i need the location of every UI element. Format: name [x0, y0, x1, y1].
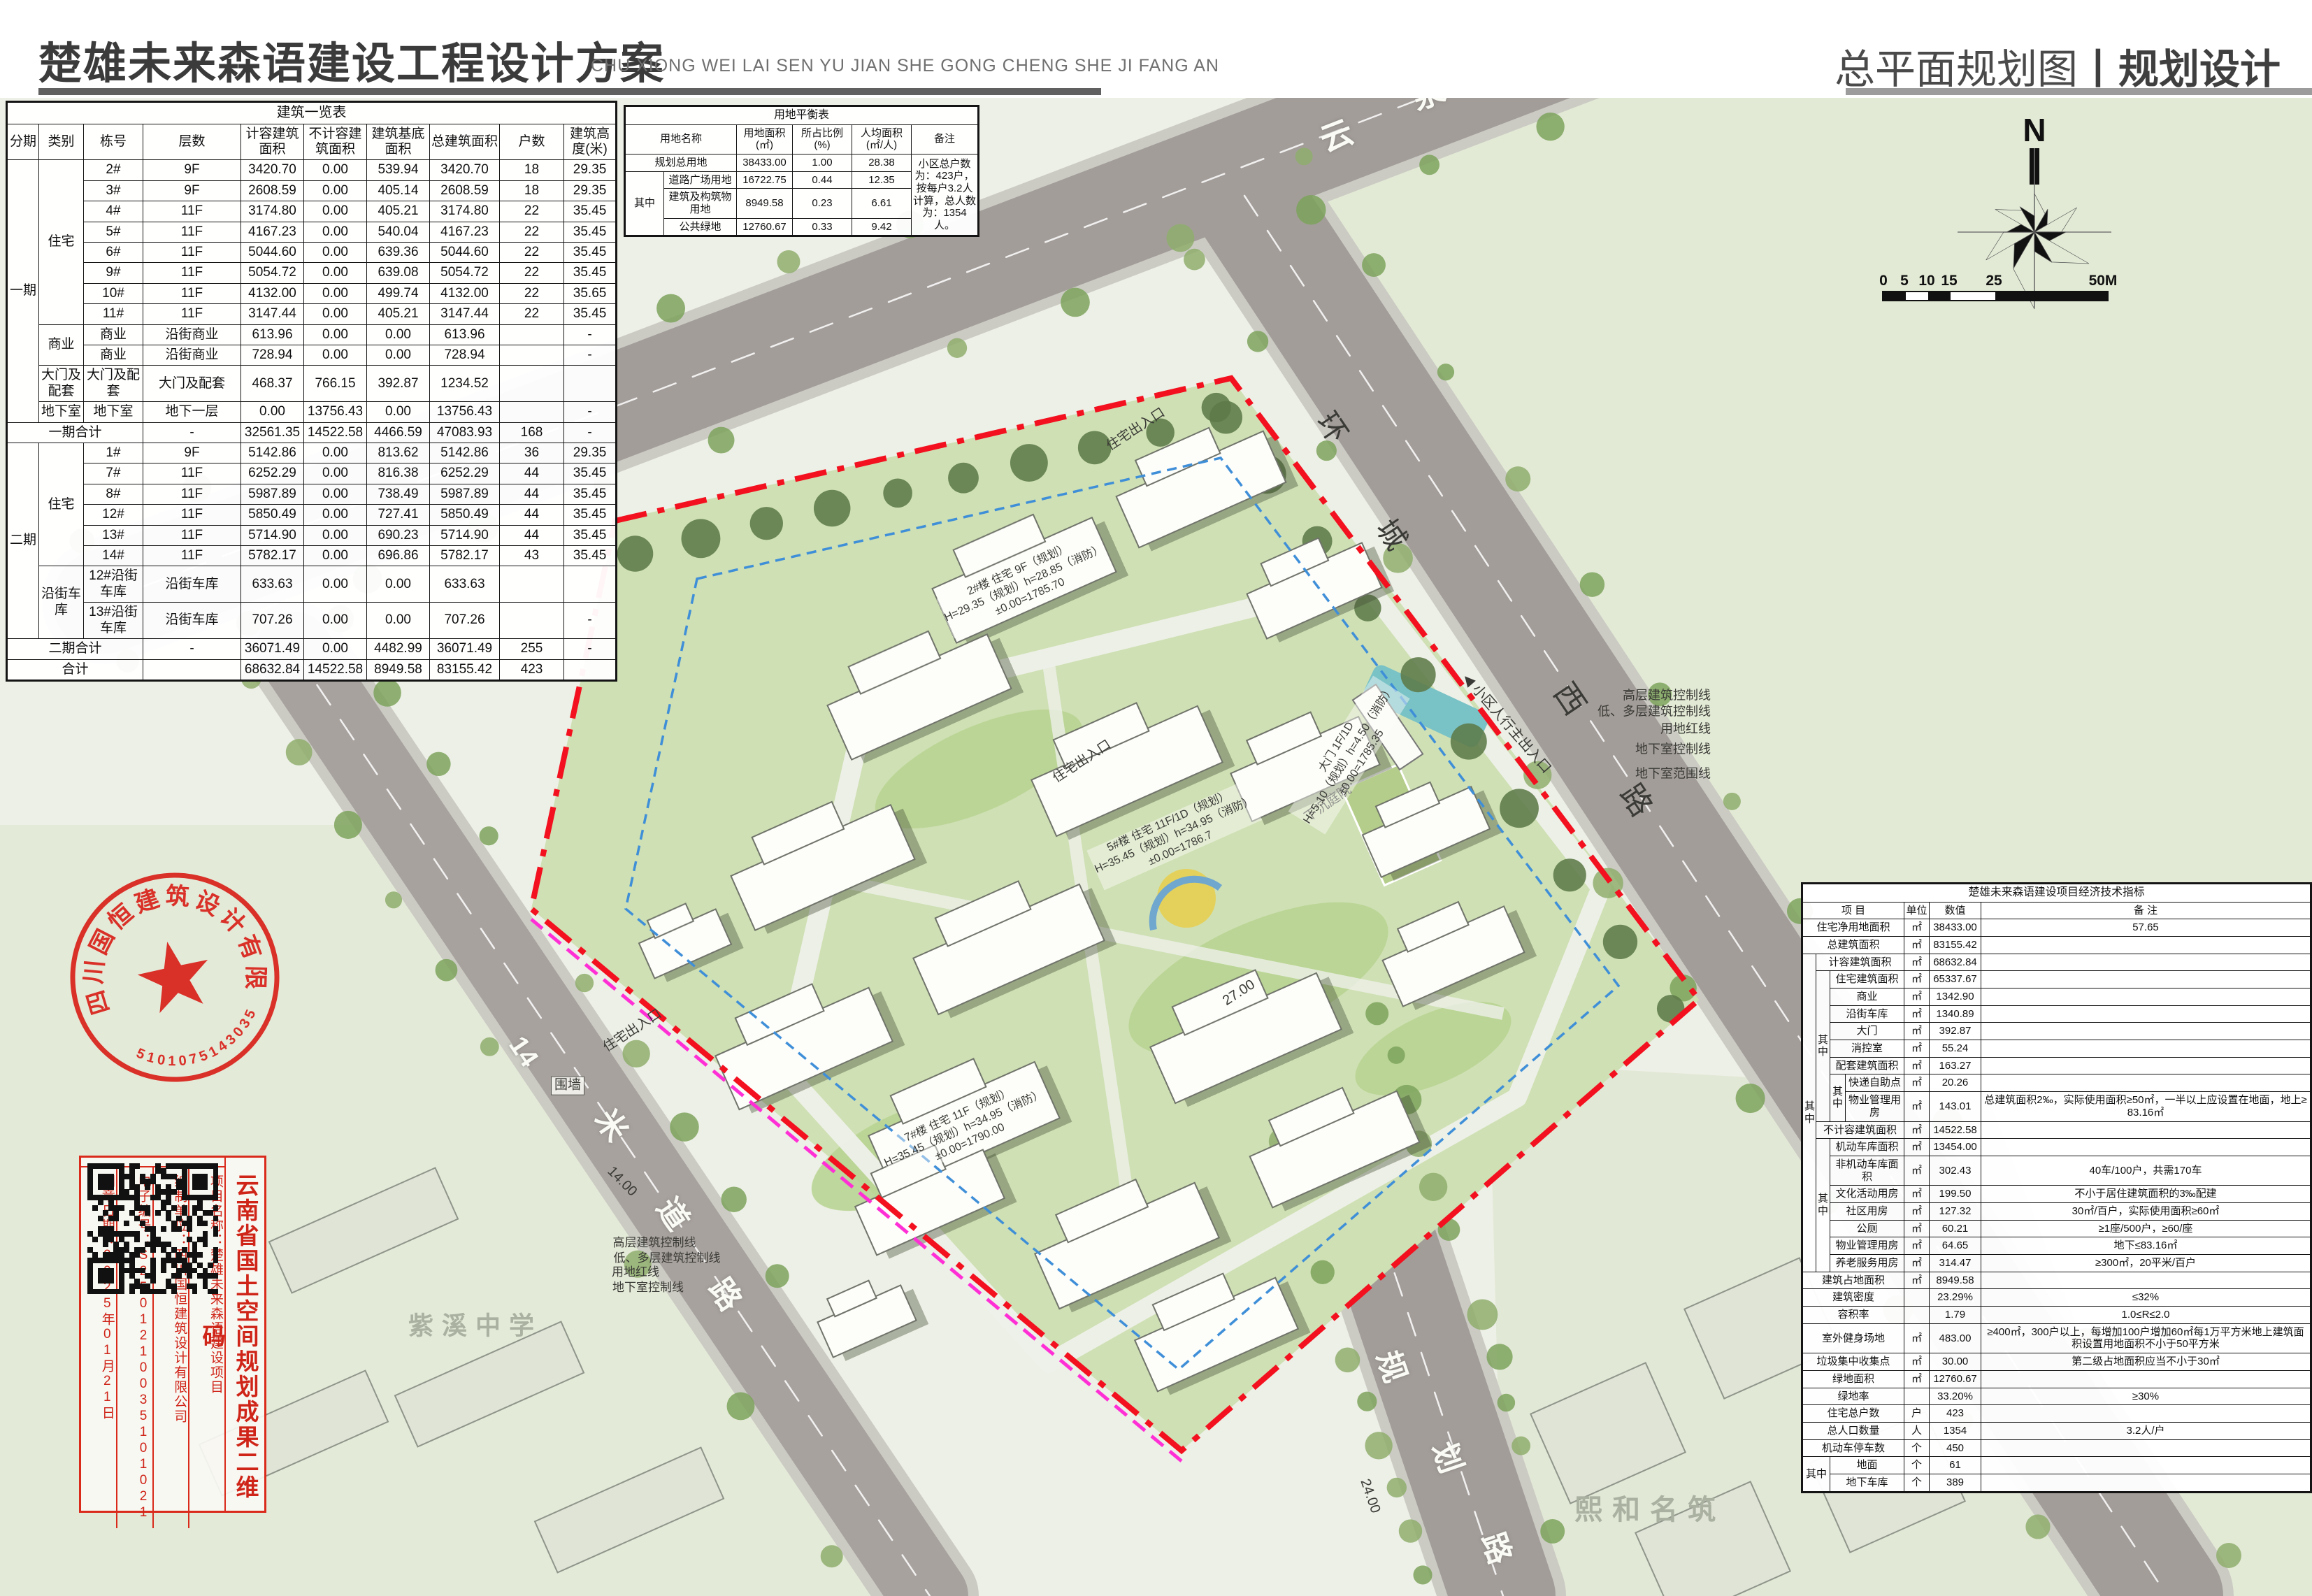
table-cell: 机动车停车数: [1802, 1439, 1904, 1457]
table-cell: 不小于居住建筑面积的3‰配建: [1981, 1186, 2311, 1203]
table-cell: 0.00: [367, 345, 430, 366]
table-cell: 物业管理用房: [1830, 1237, 1904, 1255]
table-cell: 公厕: [1830, 1220, 1904, 1237]
table-cell: ㎡: [1904, 1353, 1930, 1371]
table-cell: 住宅: [39, 443, 84, 566]
table-cell: 3147.44: [430, 304, 500, 324]
table-cell: 13#沿街车库: [84, 603, 143, 639]
table-cell: -: [564, 422, 617, 443]
table-cell: 项 目: [1802, 902, 1904, 919]
table-cell: 沿街车库: [143, 566, 241, 603]
table-cell: 9F: [143, 160, 241, 180]
table-cell: -: [143, 639, 241, 659]
table-cell: 816.38: [367, 463, 430, 484]
table-cell: 建筑及构筑物用地: [664, 189, 737, 218]
table-cell: [1981, 1457, 2311, 1474]
table-cell: 消控室: [1830, 1040, 1904, 1058]
table-cell: 分期: [7, 124, 39, 160]
table-cell: ㎡: [1904, 1255, 1930, 1272]
table-cell: 小区总户数为：423户，按每户3.2人计算，总人数为：1354人。: [912, 154, 979, 236]
table-cell: ≥300㎡，20平米/百户: [1981, 1255, 2311, 1272]
table-cell: 1234.52: [430, 366, 500, 402]
table-cell: 沿街车库: [143, 603, 241, 639]
table-cell: 35.45: [564, 263, 617, 283]
table-cell: 35.45: [564, 525, 617, 545]
table-cell: ㎡: [1904, 1370, 1930, 1388]
header-rule-right: [1846, 88, 2312, 95]
table-cell: 其中: [1816, 1139, 1830, 1272]
table-cell: 35.45: [564, 484, 617, 504]
table-cell: ㎡: [1904, 1023, 1930, 1040]
table-cell: ㎡: [1904, 1121, 1930, 1139]
table-cell: 389: [1930, 1474, 1981, 1492]
table-cell: 539.94: [367, 160, 430, 180]
table-cell: 住宅总户数: [1802, 1405, 1904, 1423]
table-cell: 备注: [912, 124, 979, 154]
compass-n-label: N: [2023, 112, 2046, 148]
table-cell: 总建筑面积2‰，实际使用面积≥50㎡，一半以上应设置在地面，地上≥83.16㎡: [1981, 1092, 2311, 1121]
table-cell: 0.00: [304, 566, 367, 603]
table-cell: 423: [500, 659, 564, 680]
table-cell: ㎡: [1904, 1092, 1930, 1121]
table-cell: 405.21: [367, 201, 430, 222]
table-cell: 35.45: [564, 463, 617, 484]
table-cell: 用地平衡表: [625, 106, 979, 125]
table-cell: 13454.00: [1930, 1139, 1981, 1156]
table-cell: 其中: [1830, 1074, 1846, 1121]
sheet-title-pinyin: CHU XIONG WEI LAI SEN YU JIAN SHE GONG C…: [591, 56, 1219, 76]
table-cell: -: [564, 639, 617, 659]
table-cell: 非机动车库面积: [1830, 1156, 1904, 1185]
qr-field-serial: 电子编号：S2501210035101021: [117, 1167, 154, 1528]
table-cell: 8949.58: [367, 659, 430, 680]
table-cell: [500, 603, 564, 639]
table-cell: 12.35: [852, 171, 912, 189]
table-cell: ㎡: [1904, 919, 1930, 937]
table-cell: 1.79: [1930, 1307, 1981, 1324]
table-cell: 35.45: [564, 546, 617, 566]
table-cell: [1981, 1074, 2311, 1092]
scale-bar-segments: [1882, 291, 2109, 301]
table-cell: 第二级占地面积应当不小于30㎡: [1981, 1353, 2311, 1371]
table-cell: 64.65: [1930, 1237, 1981, 1255]
table-cell: ㎡: [1904, 1323, 1930, 1353]
table-cell: [500, 345, 564, 366]
table-cell: 单位: [1904, 902, 1930, 919]
table-cell: 沿街车库: [1830, 1005, 1904, 1023]
table-cell: 22: [500, 304, 564, 324]
table-cell: 快递自助点: [1846, 1074, 1904, 1092]
table-cell: 4132.00: [241, 283, 304, 303]
stamp-serial-number: 5101075143035: [128, 1002, 269, 1079]
table-cell: 0.00: [304, 443, 367, 463]
table-cell: 建筑高度(米): [564, 124, 617, 160]
table-cell: 613.96: [430, 324, 500, 345]
table-cell: 35.45: [564, 222, 617, 242]
table-cell: 68632.84: [1930, 954, 1981, 971]
table-cell: 计容建筑面积: [241, 124, 304, 160]
scale-tick: 0: [1879, 273, 1888, 289]
table-cell: 11F: [143, 242, 241, 262]
table-cell: -: [564, 324, 617, 345]
table-cell: ≥400㎡，300户以上，每增加100户增加60㎡每1万平方米地上建筑面积设置用…: [1981, 1323, 2311, 1353]
table-cell: 5850.49: [430, 505, 500, 525]
table-cell: 738.49: [367, 484, 430, 504]
table-cell: 地下室: [84, 402, 143, 422]
table-cell: 物业管理用房: [1846, 1092, 1904, 1121]
table-cell: 总人口数量: [1802, 1422, 1904, 1439]
table-cell: 143.01: [1930, 1092, 1981, 1121]
table-cell: 40车/100户，共需170车: [1981, 1156, 2311, 1185]
table-cell: 0.00: [304, 222, 367, 242]
table-cell: [500, 402, 564, 422]
table-cell: 707.26: [241, 603, 304, 639]
table-cell: [1981, 1057, 2311, 1074]
table-cell: [143, 659, 241, 680]
table-cell: 不计容建筑面积: [304, 124, 367, 160]
table-cell: 0.00: [304, 484, 367, 504]
table-cell: [500, 566, 564, 603]
table-cell: 1#: [84, 443, 143, 463]
table-cell: 所占比例(%): [793, 124, 852, 154]
table-cell: ㎡: [1904, 1272, 1930, 1289]
table-cell: 14522.58: [304, 659, 367, 680]
table-cell: 道路广场用地: [664, 171, 737, 189]
table-cell: 5044.60: [241, 242, 304, 262]
table-cell: 450: [1930, 1439, 1981, 1457]
table-cell: 314.47: [1930, 1255, 1981, 1272]
table-cell: [1981, 1040, 2311, 1058]
table-cell: 其中: [1802, 1457, 1830, 1492]
table-cell: [1981, 1023, 2311, 1040]
table-cell: 楚雄未来森语建设项目经济技术指标: [1802, 884, 2311, 903]
table-cell: [564, 659, 617, 680]
table-cell: 11F: [143, 505, 241, 525]
table-cell: 4#: [84, 201, 143, 222]
land-balance-table: 用地平衡表用地名称用地面积(㎡)所占比例(%)人均面积(㎡/人)备注规划总用地3…: [624, 105, 979, 237]
table-cell: 3.2人/户: [1981, 1422, 2311, 1439]
table-cell: 83155.42: [1930, 936, 1981, 954]
table-cell: 户: [1904, 1405, 1930, 1423]
economic-indicator-table: 楚雄未来森语建设项目经济技术指标项 目单位数值备 注住宅净用地面积㎡38433.…: [1801, 882, 2312, 1493]
table-cell: 0.00: [367, 566, 430, 603]
table-cell: 22: [500, 283, 564, 303]
table-cell: 栋号: [84, 124, 143, 160]
table-cell: [1981, 1121, 2311, 1139]
table-cell: ㎡: [1904, 1237, 1930, 1255]
scale-tick: 10: [1918, 273, 1934, 289]
table-cell: 499.74: [367, 283, 430, 303]
table-cell: 29.35: [564, 160, 617, 180]
sheet-header: 楚雄未来森语建设工程设计方案 CHU XIONG WEI LAI SEN YU …: [0, 0, 2312, 98]
table-cell: 其中: [625, 171, 664, 236]
table-cell: 0.00: [304, 525, 367, 545]
table-cell: 0.00: [304, 242, 367, 262]
table-cell: 住宅净用地面积: [1802, 919, 1904, 937]
table-cell: [1981, 954, 2311, 971]
table-cell: 1354: [1930, 1422, 1981, 1439]
table-cell: 公共绿地: [664, 218, 737, 236]
table-cell: 35.45: [564, 304, 617, 324]
table-cell: 766.15: [304, 366, 367, 402]
table-cell: [500, 366, 564, 402]
table-cell: 大门及配套: [143, 366, 241, 402]
table-cell: 57.65: [1981, 919, 2311, 937]
table-cell: -: [564, 603, 617, 639]
table-cell: 11F: [143, 263, 241, 283]
table-cell: 住宅: [39, 160, 84, 324]
table-cell: 6252.29: [430, 463, 500, 484]
table-cell: 5142.86: [241, 443, 304, 463]
table-cell: 12760.67: [737, 218, 793, 236]
table-cell: [1904, 1289, 1930, 1307]
table-cell: 43: [500, 546, 564, 566]
table-cell: 4466.59: [367, 422, 430, 443]
table-cell: 大门及配套: [84, 366, 143, 402]
table-cell: 23.29%: [1930, 1289, 1981, 1307]
table-cell: 4167.23: [241, 222, 304, 242]
scale-tick: 15: [1941, 273, 1957, 289]
table-cell: 38433.00: [737, 154, 793, 171]
table-cell: 1.0≤R≤2.0: [1981, 1307, 2311, 1324]
table-cell: 2608.59: [430, 180, 500, 201]
table-cell: 3147.44: [241, 304, 304, 324]
table-cell: 405.21: [367, 304, 430, 324]
table-cell: 0.00: [304, 463, 367, 484]
table-cell: 163.27: [1930, 1057, 1981, 1074]
table-cell: ≥30%: [1981, 1388, 2311, 1405]
table-cell: 0.00: [241, 402, 304, 422]
table-cell: 11F: [143, 304, 241, 324]
table-cell: 11F: [143, 283, 241, 303]
table-cell: 483.00: [1930, 1323, 1981, 1353]
table-cell: 商业: [84, 324, 143, 345]
table-cell: ㎡: [1904, 1005, 1930, 1023]
table-cell: 423: [1930, 1405, 1981, 1423]
table-cell: 0.00: [367, 603, 430, 639]
table-cell: [1981, 1370, 2311, 1388]
table-cell: 127.32: [1930, 1202, 1981, 1220]
table-cell: 3420.70: [241, 160, 304, 180]
table-cell: 数值: [1930, 902, 1981, 919]
table-cell: 0.00: [304, 180, 367, 201]
table-cell: 绿地率: [1802, 1388, 1904, 1405]
table-cell: [1981, 1439, 2311, 1457]
table-cell: 1340.89: [1930, 1005, 1981, 1023]
table-cell: 55.24: [1930, 1040, 1981, 1058]
table-cell: 合计: [7, 659, 143, 680]
table-cell: ㎡: [1904, 1156, 1930, 1185]
table-cell: 22: [500, 263, 564, 283]
table-cell: [1981, 971, 2311, 988]
table-cell: ㎡: [1904, 988, 1930, 1006]
table-cell: 0.00: [304, 263, 367, 283]
table-cell: ㎡: [1904, 1139, 1930, 1156]
table-cell: 1.00: [793, 154, 852, 171]
table-cell: 0.44: [793, 171, 852, 189]
table-cell: 5044.60: [430, 242, 500, 262]
table-cell: [1981, 1272, 2311, 1289]
table-cell: 垃圾集中收集点: [1802, 1353, 1904, 1371]
table-cell: 7#: [84, 463, 143, 484]
table-cell: 38433.00: [1930, 919, 1981, 937]
table-cell: 二期合计: [7, 639, 143, 659]
table-cell: 0.00: [304, 160, 367, 180]
table-cell: 14522.58: [1930, 1121, 1981, 1139]
table-cell: 14522.58: [304, 422, 367, 443]
table-cell: [1904, 1307, 1930, 1324]
table-cell: ㎡: [1904, 971, 1930, 988]
table-cell: 0.00: [304, 304, 367, 324]
table-cell: 6.61: [852, 189, 912, 218]
table-cell: ㎡: [1904, 1202, 1930, 1220]
table-cell: 0.33: [793, 218, 852, 236]
table-cell: 4167.23: [430, 222, 500, 242]
table-cell: 29.35: [564, 443, 617, 463]
table-cell: 建筑密度: [1802, 1289, 1904, 1307]
table-cell: 总建筑面积: [1802, 936, 1904, 954]
table-cell: 29.35: [564, 180, 617, 201]
table-cell: 8949.58: [1930, 1272, 1981, 1289]
table-cell: 11F: [143, 201, 241, 222]
table-cell: 其中: [1802, 954, 1816, 1272]
table-cell: 3174.80: [430, 201, 500, 222]
table-cell: 建筑占地面积: [1802, 1272, 1904, 1289]
table-cell: 5782.17: [430, 546, 500, 566]
table-cell: 商业: [84, 345, 143, 366]
table-cell: 层数: [143, 124, 241, 160]
table-cell: 4482.99: [367, 639, 430, 659]
table-cell: 199.50: [1930, 1186, 1981, 1203]
svg-text:5101075143035: 5101075143035: [128, 1002, 269, 1079]
table-cell: 36071.49: [430, 639, 500, 659]
header-rule-left: [38, 88, 1101, 95]
table-cell: 8949.58: [737, 189, 793, 218]
table-cell: 大门: [1830, 1023, 1904, 1040]
table-cell: 0.00: [367, 402, 430, 422]
table-cell: 商业: [39, 324, 84, 366]
table-cell: 696.86: [367, 546, 430, 566]
table-cell: 5#: [84, 222, 143, 242]
table-cell: 建筑一览表: [7, 102, 617, 124]
table-cell: 社区用房: [1830, 1202, 1904, 1220]
table-cell: 540.04: [367, 222, 430, 242]
table-cell: 11#: [84, 304, 143, 324]
table-cell: 0.00: [304, 505, 367, 525]
table-cell: 0.00: [304, 603, 367, 639]
scale-tick: 25: [1986, 273, 2002, 289]
table-cell: 地下车库: [1830, 1474, 1904, 1492]
table-cell: 4132.00: [430, 283, 500, 303]
table-cell: 35.45: [564, 242, 617, 262]
table-cell: 一期: [7, 160, 39, 422]
table-cell: 住宅建筑面积: [1830, 971, 1904, 988]
table-cell: 不计容建筑面积: [1816, 1121, 1904, 1139]
table-cell: 0.00: [304, 283, 367, 303]
table-cell: 用地面积(㎡): [737, 124, 793, 154]
table-cell: 11F: [143, 463, 241, 484]
table-cell: 10#: [84, 283, 143, 303]
table-cell: 60.21: [1930, 1220, 1981, 1237]
table-cell: 28.38: [852, 154, 912, 171]
table-cell: 639.08: [367, 263, 430, 283]
table-cell: 14#: [84, 546, 143, 566]
table-cell: 配套建筑面积: [1830, 1057, 1904, 1074]
table-cell: 633.63: [241, 566, 304, 603]
table-cell: 9F: [143, 443, 241, 463]
table-cell: 户数: [500, 124, 564, 160]
table-cell: ㎡: [1904, 936, 1930, 954]
table-cell: ≥1座/500户，≥60/座: [1981, 1220, 2311, 1237]
table-cell: 16722.75: [737, 171, 793, 189]
table-cell: 计容建筑面积: [1816, 954, 1904, 971]
table-cell: 一期合计: [7, 422, 143, 443]
table-cell: 13756.43: [304, 402, 367, 422]
table-cell: 文化活动用房: [1830, 1186, 1904, 1203]
scale-tick: 50M: [2089, 273, 2118, 289]
table-cell: 个: [1904, 1457, 1930, 1474]
table-cell: 其中: [1816, 971, 1830, 1121]
table-cell: 5714.90: [430, 525, 500, 545]
table-cell: 0.00: [304, 324, 367, 345]
table-cell: 5142.86: [430, 443, 500, 463]
table-cell: 绿地面积: [1802, 1370, 1904, 1388]
table-cell: 人均面积(㎡/人): [852, 124, 912, 154]
table-cell: 人: [1904, 1422, 1930, 1439]
table-cell: 用地名称: [625, 124, 737, 154]
table-cell: 9#: [84, 263, 143, 283]
table-cell: 0.00: [304, 639, 367, 659]
table-cell: 168: [500, 422, 564, 443]
table-cell: 1342.90: [1930, 988, 1981, 1006]
table-cell: 68632.84: [241, 659, 304, 680]
company-stamp: 四川国恒建筑设计有限公司 5101075143035: [66, 869, 283, 1086]
table-cell: [1981, 988, 2311, 1006]
table-cell: 11F: [143, 546, 241, 566]
table-cell: 2#: [84, 160, 143, 180]
table-cell: 633.63: [430, 566, 500, 603]
table-cell: 728.94: [430, 345, 500, 366]
table-cell: ㎡: [1904, 1220, 1930, 1237]
table-cell: 总建筑面积: [430, 124, 500, 160]
table-cell: 255: [500, 639, 564, 659]
table-cell: 6252.29: [241, 463, 304, 484]
table-cell: 11F: [143, 525, 241, 545]
table-cell: 个: [1904, 1474, 1930, 1492]
table-cell: 地下一层: [143, 402, 241, 422]
table-cell: 12#沿街车库: [84, 566, 143, 603]
table-cell: 容积率: [1802, 1307, 1904, 1324]
table-cell: 3420.70: [430, 160, 500, 180]
table-cell: 35.65: [564, 283, 617, 303]
table-cell: 大门及配套: [39, 366, 84, 402]
table-cell: 30.00: [1930, 1353, 1981, 1371]
table-cell: 养老服务用房: [1830, 1255, 1904, 1272]
qr-block-title: 云南省国土空间规划成果二维码: [224, 1158, 262, 1511]
table-cell: [500, 324, 564, 345]
table-cell: [1981, 1139, 2311, 1156]
table-cell: 392.87: [367, 366, 430, 402]
table-cell: 地下室: [39, 402, 84, 422]
table-cell: 727.41: [367, 505, 430, 525]
table-cell: 33.20%: [1930, 1388, 1981, 1405]
table-cell: ㎡: [1904, 1057, 1930, 1074]
table-cell: 22: [500, 222, 564, 242]
table-cell: 12#: [84, 505, 143, 525]
table-cell: 5714.90: [241, 525, 304, 545]
table-cell: 728.94: [241, 345, 304, 366]
table-cell: 地面: [1830, 1457, 1904, 1474]
